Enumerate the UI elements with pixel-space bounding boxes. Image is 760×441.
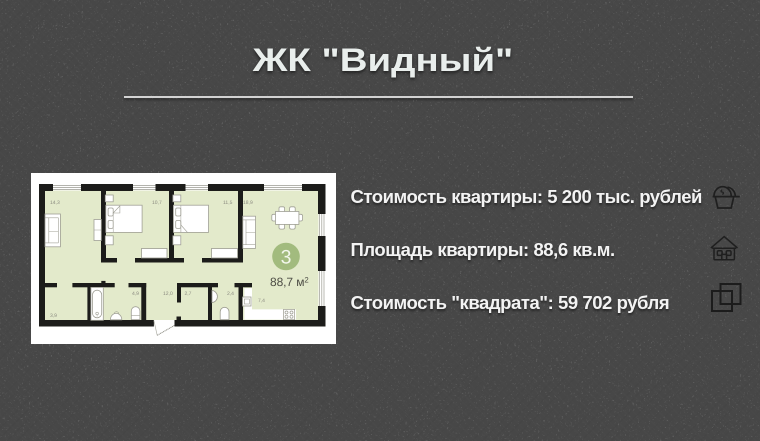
- svg-text:18,9: 18,9: [243, 200, 253, 206]
- svg-text:7,4: 7,4: [258, 298, 265, 304]
- svg-text:3,9: 3,9: [50, 313, 57, 319]
- svg-text:2,7: 2,7: [185, 291, 192, 297]
- svg-text:4,9: 4,9: [132, 291, 139, 297]
- svg-text:10,7: 10,7: [152, 200, 162, 206]
- svg-text:88,7 м2: 88,7 м2: [270, 275, 309, 289]
- svg-text:14,3: 14,3: [50, 200, 60, 206]
- svg-text:11,5: 11,5: [223, 200, 233, 206]
- svg-text:3: 3: [281, 247, 292, 269]
- svg-text:12,0: 12,0: [163, 291, 173, 297]
- svg-text:2,4: 2,4: [227, 291, 234, 297]
